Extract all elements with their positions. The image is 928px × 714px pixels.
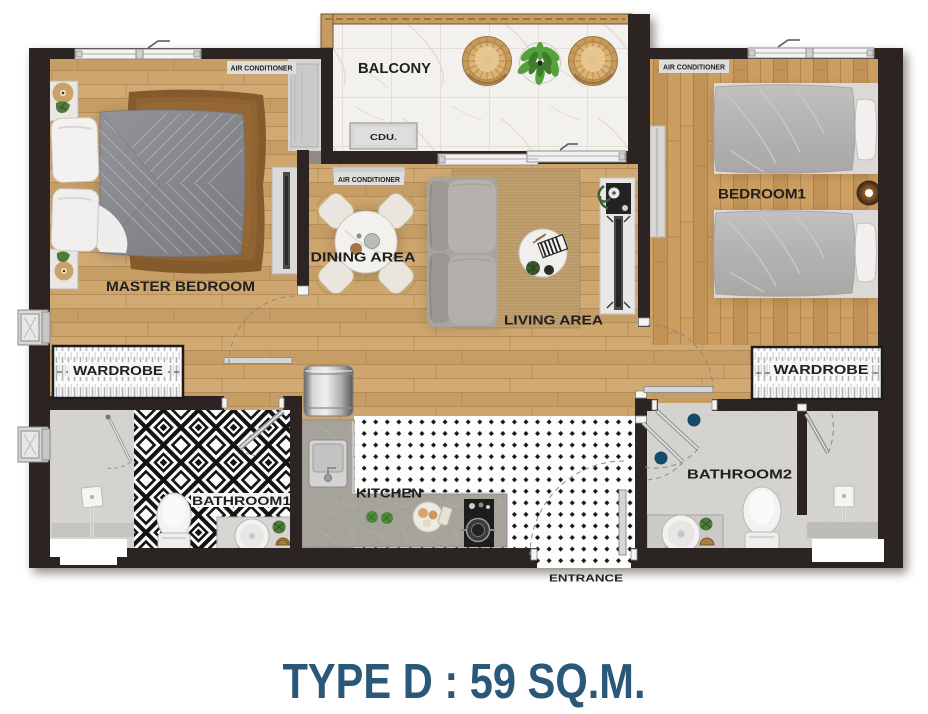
svg-text:LIVING AREA: LIVING AREA (504, 314, 603, 328)
svg-text:AIR CONDITIONER: AIR CONDITIONER (231, 64, 294, 73)
svg-text:CDU.: CDU. (370, 132, 397, 142)
svg-text:BEDROOM1: BEDROOM1 (718, 187, 807, 202)
svg-text:WARDROBE: WARDROBE (774, 362, 869, 377)
svg-text:ENTRANCE: ENTRANCE (549, 574, 623, 585)
svg-text:AIR CONDITIONER: AIR CONDITIONER (338, 175, 401, 184)
svg-text:BATHROOM1: BATHROOM1 (192, 496, 292, 508)
svg-text:MASTER BEDROOM: MASTER BEDROOM (106, 279, 255, 294)
svg-text:KITCHEN: KITCHEN (356, 487, 422, 501)
svg-text:DINING AREA: DINING AREA (311, 251, 416, 265)
svg-text:WARDROBE: WARDROBE (73, 363, 163, 378)
svg-text:BATHROOM2: BATHROOM2 (687, 468, 792, 482)
svg-text:AIR CONDITIONER: AIR CONDITIONER (663, 63, 726, 72)
svg-text:BALCONY: BALCONY (358, 61, 431, 77)
svg-text:TYPE D : 59 SQ.M.: TYPE D : 59 SQ.M. (283, 655, 646, 709)
